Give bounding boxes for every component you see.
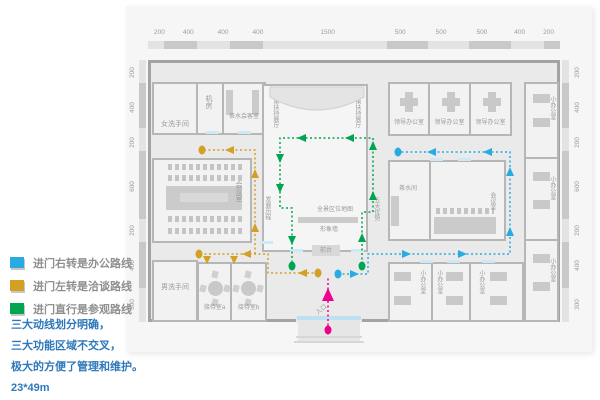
label-small-office-r2: 小办公室 (548, 176, 555, 200)
dimension-segment (562, 288, 569, 322)
label-policy-hall-right: 政策扶持展厅 (353, 92, 360, 128)
label-policy-hall-left: 政策扶持展厅 (271, 92, 278, 128)
door-mark (420, 260, 433, 263)
desk (533, 200, 550, 209)
door-mark (260, 241, 273, 244)
dimension-segment (562, 219, 569, 242)
label-meeting-right: 会议室 (488, 192, 495, 210)
label-leader-office-3: 领导办公室 (469, 120, 512, 127)
dimension-segment (230, 41, 263, 49)
label-women-restroom: 女洗手间 (152, 121, 198, 129)
ruler-right-bar (562, 60, 569, 322)
dimension-segment (164, 41, 197, 49)
dimension-segment (387, 41, 428, 49)
chair-row (436, 208, 494, 214)
legend-item-office: 进门右转是办公路线 (10, 251, 132, 274)
dimension-label: 400 (241, 27, 276, 37)
label-men-restroom: 男洗手间 (152, 284, 198, 292)
dimension-segment (139, 60, 146, 83)
dimension-segment (139, 83, 146, 129)
round-table (208, 281, 223, 296)
dimension-label: 400 (502, 27, 537, 37)
dimension-segment (562, 60, 569, 83)
ruler-top-bar (148, 41, 560, 49)
conference-table (434, 217, 496, 234)
dimension-label: 200 (126, 218, 138, 244)
label-tea-reception: 茶水会客室 (222, 114, 266, 121)
legend-swatch-office (10, 257, 24, 268)
desk (446, 296, 463, 305)
dimension-label: 200 (126, 60, 138, 86)
door-mark (430, 158, 443, 161)
label-reception-b: 接待室b (230, 305, 267, 312)
conference-table-inlay (180, 193, 228, 202)
desk (490, 272, 507, 281)
dimension-label: 200 (537, 27, 560, 37)
label-leader-office-2: 领导办公室 (428, 120, 471, 127)
label-reception-a: 接待室a (197, 305, 232, 312)
dimension-segment (511, 41, 544, 49)
dimension-label: 200 (571, 130, 583, 156)
label-front-desk: 前台 (312, 248, 340, 255)
dimension-segment (139, 242, 146, 288)
office-desk (479, 90, 505, 114)
label-machine-room: 机房 (204, 95, 212, 109)
dimension-label: 400 (571, 86, 583, 130)
label-leader-office-1: 领导办公室 (388, 120, 430, 127)
label-small-office-b1: 小办公室 (418, 270, 425, 294)
dimension-label: 1500 (275, 27, 379, 37)
label-tech-salon: 科技沙龙 (287, 95, 343, 103)
note-line-2: 三大功能区域不交叉， (11, 336, 143, 357)
chair-row (168, 216, 244, 222)
notes-block: 三大动线划分明确， 三大功能区域不交叉， 极大的方便了管理和维护。 23*49m (11, 315, 143, 399)
round-table (241, 281, 256, 296)
label-small-office-r3: 小办公室 (548, 258, 555, 282)
dimension-label: 400 (126, 86, 138, 130)
entrance-steps (298, 320, 360, 342)
note-line-3: 极大的方便了管理和维护。 (11, 357, 143, 378)
label-small-office-b2: 小办公室 (435, 270, 442, 294)
dimension-label: 500 (421, 27, 462, 37)
dimension-segment (562, 83, 569, 129)
ruler-left-bar (139, 60, 146, 322)
map-wall-panel (298, 217, 358, 223)
desk (394, 272, 411, 281)
desk (394, 296, 411, 305)
legend-label-office: 进门右转是办公路线 (33, 255, 132, 271)
label-meeting-left: 会议室 (234, 181, 242, 202)
dimension-label: 600 (126, 155, 138, 218)
chair-row (168, 164, 244, 170)
dimension-label: 400 (171, 27, 206, 37)
note-dimensions: 23*49m (11, 378, 143, 399)
label-panorama-map: 全景区位地图 (305, 207, 365, 214)
dimension-segment (469, 41, 510, 49)
dimension-segment (148, 41, 164, 49)
legend: 进门右转是办公路线 进门左转是洽谈路线 进门直行是参观路线 (10, 251, 132, 320)
dimension-label: 400 (571, 243, 583, 287)
legend-swatch-negotiation (10, 280, 24, 291)
office-desk (396, 90, 422, 114)
door-mark (238, 131, 251, 134)
desk (533, 282, 550, 291)
door-mark (482, 260, 495, 263)
dimension-segment (544, 41, 560, 49)
legend-label-negotiation: 进门左转是洽谈路线 (33, 278, 132, 294)
dimension-segment (139, 128, 146, 151)
office-desk (438, 90, 464, 114)
dimension-label: 400 (206, 27, 241, 37)
dimension-label: 200 (571, 60, 583, 86)
cabinet (226, 90, 233, 115)
legend-swatch-visit (10, 303, 24, 314)
door-mark (458, 158, 471, 161)
door-mark (206, 131, 219, 134)
note-line-1: 三大动线划分明确， (11, 315, 143, 336)
dimension-segment (562, 242, 569, 288)
label-small-office-b3: 小办公室 (477, 270, 484, 294)
dimension-segment (263, 41, 387, 49)
label-image-wall: 形象墙 (307, 227, 351, 234)
chair-row (168, 175, 244, 181)
label-dev-history: 发展历程 (263, 196, 270, 220)
tea-counter (391, 196, 399, 226)
dimension-label: 200 (126, 130, 138, 156)
dimension-label: 500 (380, 27, 421, 37)
dimension-segment (562, 151, 569, 219)
legend-item-negotiation: 进门左转是洽谈路线 (10, 274, 132, 297)
room-small-office-b1 (388, 262, 433, 322)
dimension-label: 200 (148, 27, 171, 37)
ruler-top-numbers: 2004004004001500500500500400200 (148, 27, 560, 37)
desk (490, 296, 507, 305)
door-mark (447, 260, 460, 263)
step-line (296, 336, 362, 338)
desk (446, 272, 463, 281)
dimension-segment (562, 128, 569, 151)
dimension-segment (197, 41, 230, 49)
dimension-segment (139, 219, 146, 242)
floor-plan-screenshot: 2004004004001500500500500400200 20040020… (0, 0, 600, 400)
dimension-label: 300 (571, 287, 583, 322)
dimension-label: 200 (571, 218, 583, 244)
label-tea-room: 茶水间 (388, 186, 428, 193)
step-line (294, 341, 364, 343)
label-five-advantages: 五大优势 (372, 197, 379, 221)
cabinet (252, 90, 259, 115)
dimension-segment (428, 41, 469, 49)
dimension-label: 500 (461, 27, 502, 37)
label-small-office-r1: 小办公室 (548, 96, 555, 120)
chair-row (168, 228, 244, 234)
dimension-label: 600 (571, 155, 583, 218)
ruler-right-numbers: 200400200600200400300 (571, 60, 583, 322)
door-mark (351, 249, 364, 252)
dimension-segment (139, 151, 146, 219)
door-mark (290, 249, 303, 252)
